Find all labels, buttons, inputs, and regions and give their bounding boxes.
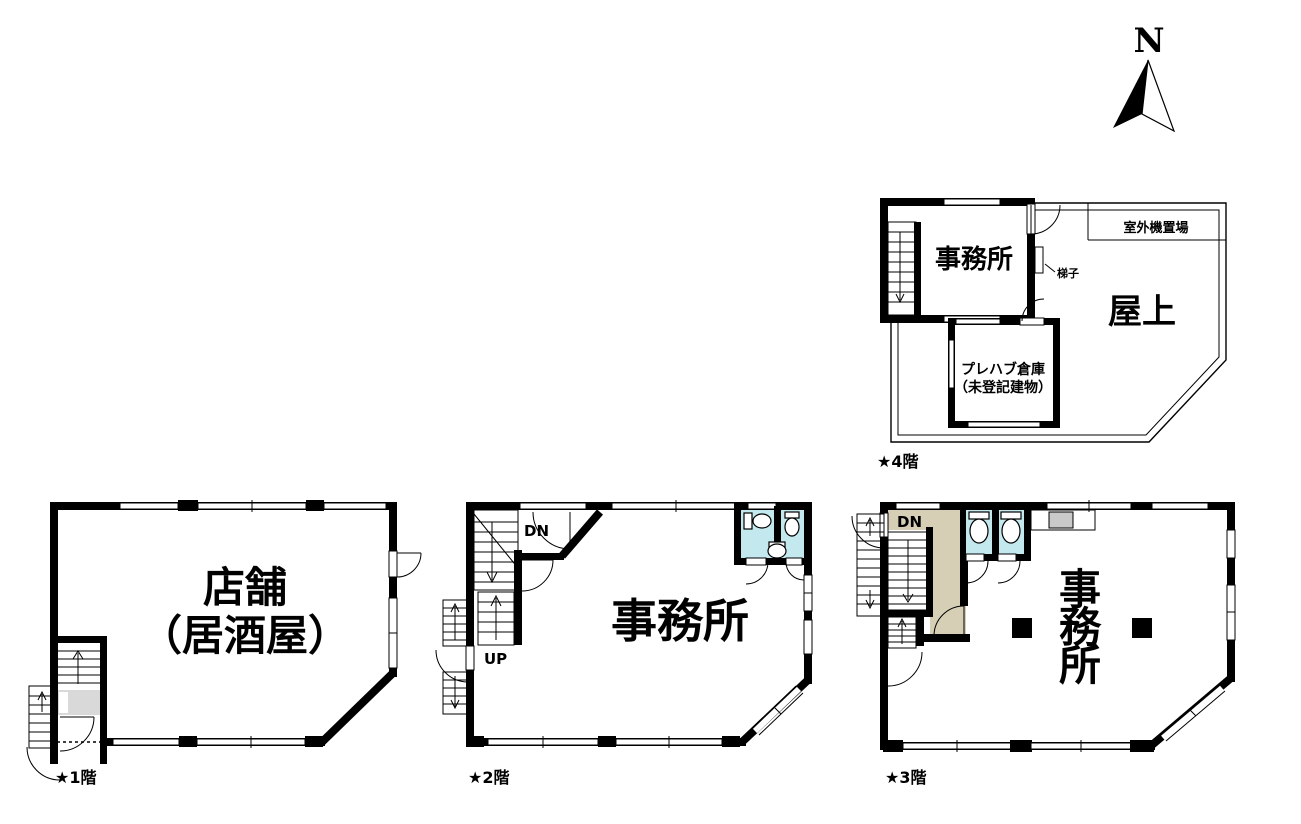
window bbox=[120, 503, 178, 509]
pillar bbox=[306, 500, 324, 511]
compass: N bbox=[1113, 21, 1174, 131]
window bbox=[324, 503, 386, 509]
stairs-4f bbox=[888, 222, 921, 315]
door-4f-roof bbox=[1027, 204, 1060, 234]
window bbox=[896, 503, 940, 509]
outdoor-unit-area: 室外機置場 bbox=[1088, 203, 1226, 240]
chamfer-window-3f bbox=[1160, 685, 1225, 741]
compass-north-label: N bbox=[1133, 21, 1164, 61]
toilet-icon bbox=[969, 512, 989, 543]
pillar bbox=[179, 736, 197, 747]
room-label-shop-line1: 店舗 bbox=[203, 563, 287, 612]
toilet-block-3f bbox=[960, 508, 1031, 583]
prefab-storage-room: プレハブ倉庫 （未登記建物） bbox=[948, 299, 1060, 428]
floor-label-3f: ★3階 bbox=[885, 768, 926, 787]
stair-label-dn-3f: DN bbox=[897, 513, 922, 531]
window bbox=[748, 503, 776, 509]
room-label-shop-line2: （居酒屋） bbox=[140, 611, 350, 660]
room-label-office-4f: 事務所 bbox=[935, 245, 1013, 275]
door-arc bbox=[522, 560, 553, 591]
sink-icon bbox=[768, 542, 786, 558]
floor-label-4f: ★4階 bbox=[877, 452, 918, 471]
floor-label-2f: ★2階 bbox=[468, 768, 509, 787]
room-label-office-3f: 事 務 所 bbox=[1059, 565, 1102, 690]
stair-label-dn-2f: DN bbox=[524, 522, 549, 540]
floor-plan-4f: 室外機置場 事務所 bbox=[877, 198, 1226, 471]
floor-plan-2f: DN UP bbox=[436, 500, 812, 787]
exterior-stairs-2f bbox=[436, 600, 474, 714]
window bbox=[968, 422, 1040, 427]
door-arc bbox=[998, 561, 1020, 583]
pillar bbox=[178, 500, 198, 511]
room-label-prefab-line2: （未登記建物） bbox=[954, 379, 1052, 396]
svg-text:所: 所 bbox=[1059, 641, 1101, 690]
window bbox=[944, 199, 1000, 205]
window bbox=[113, 739, 179, 745]
stairs-dn-2f: DN bbox=[474, 510, 549, 590]
room-label-prefab-line1: プレハブ倉庫 bbox=[961, 361, 1045, 378]
toilet-block-2f bbox=[734, 502, 812, 584]
stair-label-up-2f: UP bbox=[484, 650, 507, 668]
outdoor-unit-area-label: 室外機置場 bbox=[1123, 220, 1188, 236]
toilet-icon bbox=[744, 513, 771, 529]
office-room-4f: 事務所 bbox=[880, 198, 1060, 323]
pillar bbox=[1010, 740, 1032, 752]
door-1f-right bbox=[389, 551, 421, 577]
door-arc bbox=[60, 717, 94, 751]
pillar bbox=[598, 736, 616, 747]
pillar bbox=[1130, 740, 1154, 752]
room-label-rooftop: 屋上 bbox=[1108, 292, 1176, 332]
exterior-stairs-3f bbox=[852, 514, 884, 616]
door-arc bbox=[436, 650, 468, 682]
pillar bbox=[466, 736, 484, 747]
toilet-icon bbox=[1001, 512, 1021, 543]
chamfer-window-2f bbox=[752, 686, 803, 735]
north-needle-icon bbox=[1113, 60, 1148, 128]
window bbox=[804, 620, 812, 654]
window bbox=[1227, 530, 1235, 558]
pillar bbox=[722, 736, 740, 747]
floorplan-sheet: N 室外機置場 bbox=[0, 0, 1301, 824]
floor-plan-3f: DN bbox=[852, 500, 1235, 787]
floor-plan-1f: 店舗 （居酒屋） ★1階 bbox=[27, 500, 421, 787]
pillar bbox=[883, 740, 903, 752]
sink-counter-3f bbox=[1031, 510, 1095, 530]
stairs-1f bbox=[57, 651, 100, 751]
window bbox=[956, 319, 1000, 324]
window bbox=[1152, 503, 1208, 509]
ladder-label: 梯子 bbox=[1057, 266, 1079, 280]
north-needle-icon bbox=[1142, 60, 1174, 131]
toilet-icon bbox=[785, 512, 799, 536]
sink-icon bbox=[1049, 512, 1073, 528]
pillar bbox=[1012, 618, 1032, 638]
door-arc bbox=[966, 561, 988, 583]
pillar bbox=[305, 736, 323, 747]
window bbox=[520, 503, 586, 509]
stairs-up-2f: UP bbox=[478, 592, 514, 668]
pillar bbox=[1132, 618, 1152, 638]
ladder: 梯子 bbox=[1035, 247, 1079, 280]
door-arc bbox=[888, 652, 922, 686]
floor-label-1f: ★1階 bbox=[55, 768, 96, 787]
stairs-small-3f bbox=[888, 617, 916, 648]
room-label-office-2f: 事務所 bbox=[611, 594, 749, 648]
exterior-stairs-1f bbox=[27, 686, 60, 780]
